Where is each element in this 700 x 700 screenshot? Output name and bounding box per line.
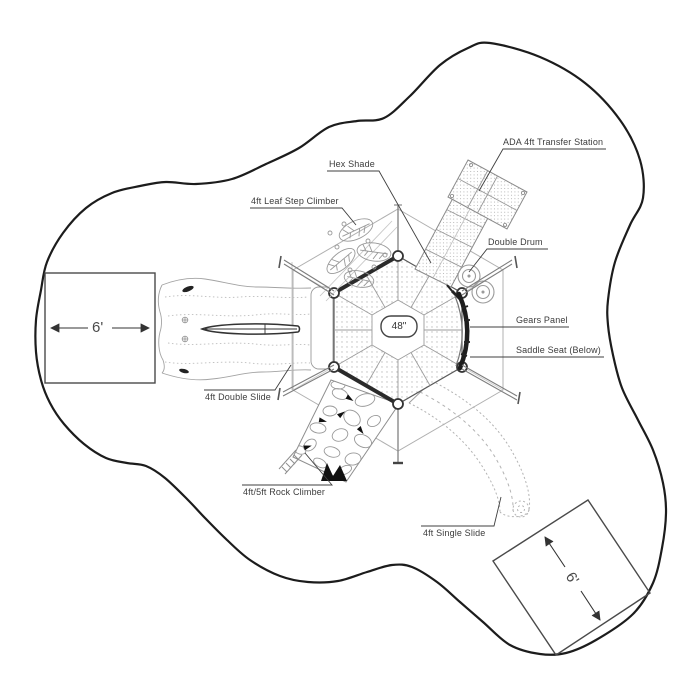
label-gears-panel: Gears Panel [516, 315, 568, 325]
label-hex-shade: Hex Shade [329, 159, 375, 169]
label-leaf-step-climber: 4ft Leaf Step Climber [251, 196, 339, 206]
slide-exit-markers [182, 317, 188, 342]
left-clearance-dimension: 6' [92, 319, 103, 336]
label-saddle-seat: Saddle Seat (Below) [516, 345, 601, 355]
label-ada-transfer-station: ADA 4ft Transfer Station [503, 137, 603, 147]
double-slide [158, 262, 333, 390]
label-double-slide: 4ft Double Slide [205, 392, 271, 402]
label-single-slide: 4ft Single Slide [423, 528, 485, 538]
playground-plan-drawing: ADA 4ft Transfer Station Hex Shade 4ft L… [0, 0, 700, 700]
ada-transfer-ramp [415, 160, 527, 287]
deck-size-text: 48" [381, 317, 417, 336]
single-slide [409, 381, 530, 517]
label-rock-climber: 4ft/5ft Rock Climber [243, 487, 325, 497]
label-double-drum: Double Drum [488, 237, 543, 247]
